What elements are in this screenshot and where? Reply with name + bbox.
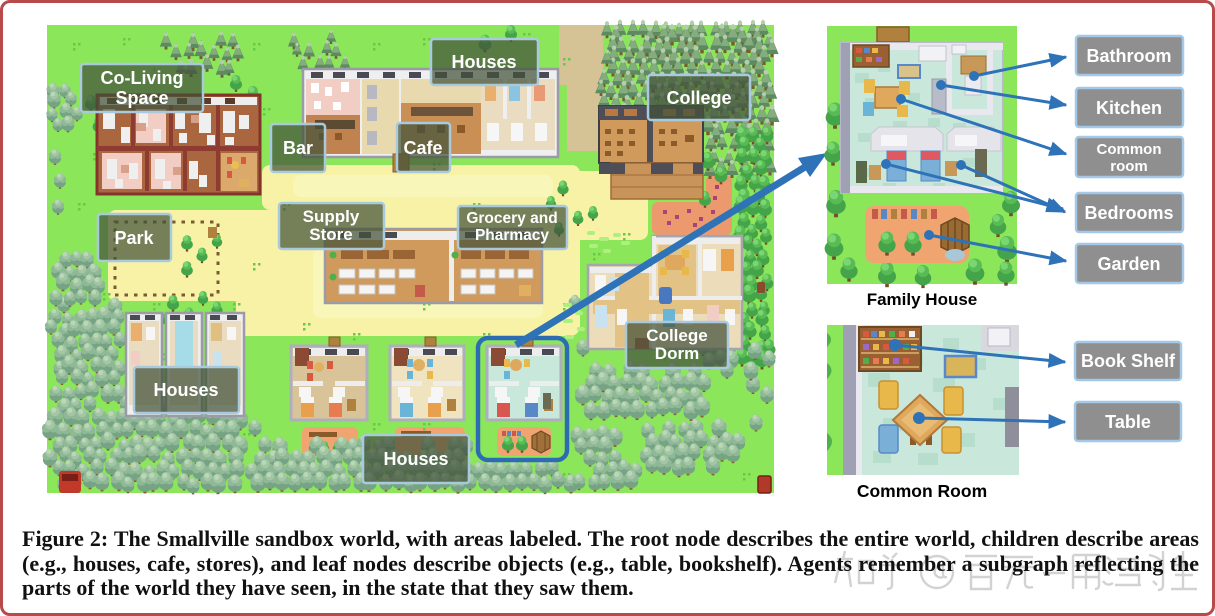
svg-text:Supply: Supply [303,207,360,226]
svg-text:Grocery and: Grocery and [466,210,557,227]
svg-text:Cafe: Cafe [403,138,442,158]
svg-text:Pharmacy: Pharmacy [475,227,549,244]
svg-text:Bar: Bar [283,138,313,158]
svg-text:Space: Space [115,88,168,108]
svg-text:College: College [666,88,731,108]
svg-text:Park: Park [114,228,154,248]
svg-text:Dorm: Dorm [655,344,699,363]
svg-text:Bedrooms: Bedrooms [1084,203,1173,223]
svg-text:Common: Common [1097,141,1162,158]
svg-text:Common Room: Common Room [857,481,987,501]
svg-text:Co-Living: Co-Living [101,68,184,88]
svg-text:Store: Store [309,225,352,244]
svg-text:Houses: Houses [383,449,448,469]
svg-text:Bathroom: Bathroom [1087,46,1172,66]
svg-text:room: room [1110,158,1148,175]
svg-text:Garden: Garden [1097,254,1160,274]
svg-text:Book Shelf: Book Shelf [1081,351,1176,371]
svg-text:College: College [646,326,707,345]
svg-text:Family House: Family House [867,290,978,309]
svg-text:Houses: Houses [153,380,218,400]
svg-text:Kitchen: Kitchen [1096,98,1162,118]
svg-text:Table: Table [1105,412,1151,432]
svg-text:Houses: Houses [451,52,516,72]
